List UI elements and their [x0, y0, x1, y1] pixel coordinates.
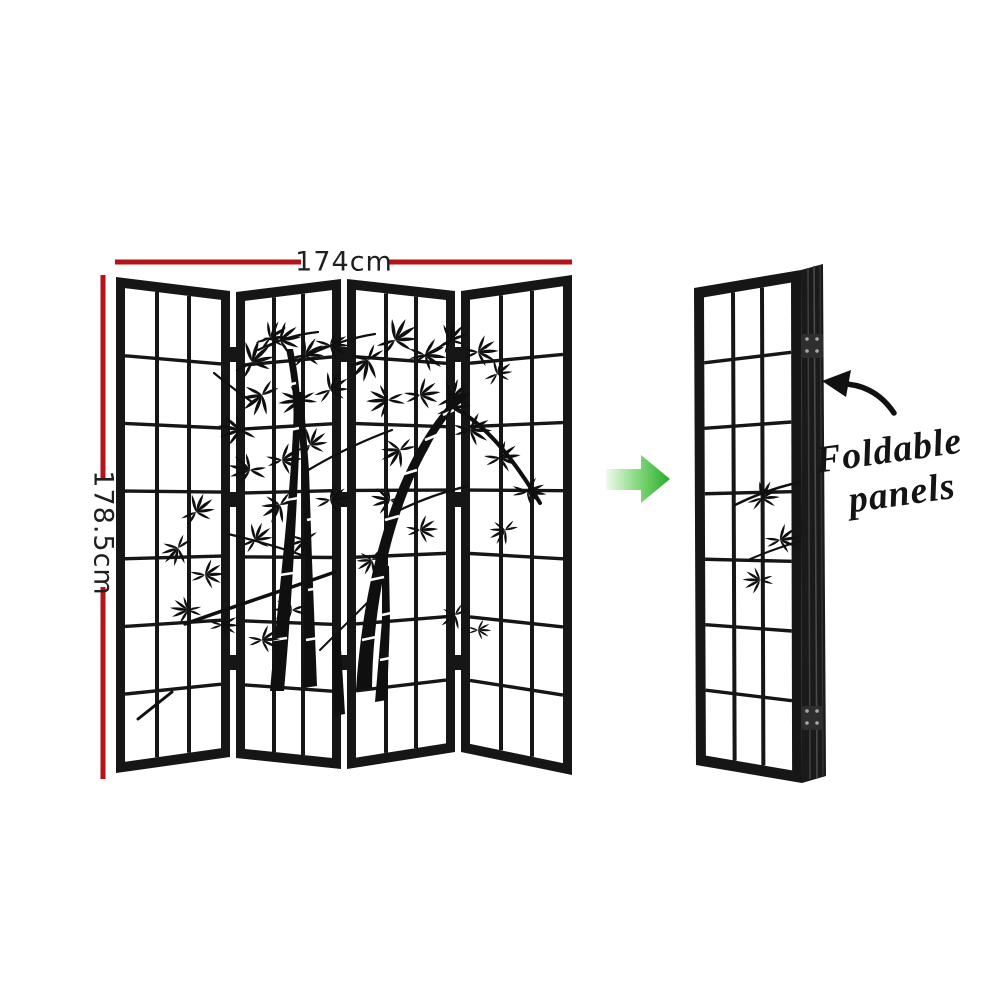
right-arrow-icon [606, 455, 670, 503]
panel-hinge [228, 347, 238, 362]
panel-hinge [453, 347, 463, 362]
width-dimension: 174cm [115, 247, 572, 278]
foldable-note: Foldable panels [812, 420, 971, 526]
diagram-canvas: 174cm 178.5cm [0, 0, 1000, 1000]
folded-front-panel [694, 270, 802, 783]
panel-hinge [453, 655, 463, 670]
folded-screen [694, 270, 802, 783]
curved-arrow-icon [822, 370, 894, 413]
height-dimension: 178.5cm [88, 275, 119, 779]
panel-hinge [339, 347, 349, 362]
screen-panel-3 [347, 279, 455, 769]
panel-hinge [228, 655, 238, 670]
panel-hinge [228, 492, 238, 507]
panel-hinge [453, 492, 463, 507]
product-dimension-diagram: 174cm 178.5cm [0, 0, 1000, 1000]
screen-panel-4 [461, 275, 572, 775]
screen-panel-1 [116, 277, 230, 773]
width-dimension-label: 174cm [295, 247, 393, 278]
height-dimension-label: 178.5cm [88, 470, 119, 595]
